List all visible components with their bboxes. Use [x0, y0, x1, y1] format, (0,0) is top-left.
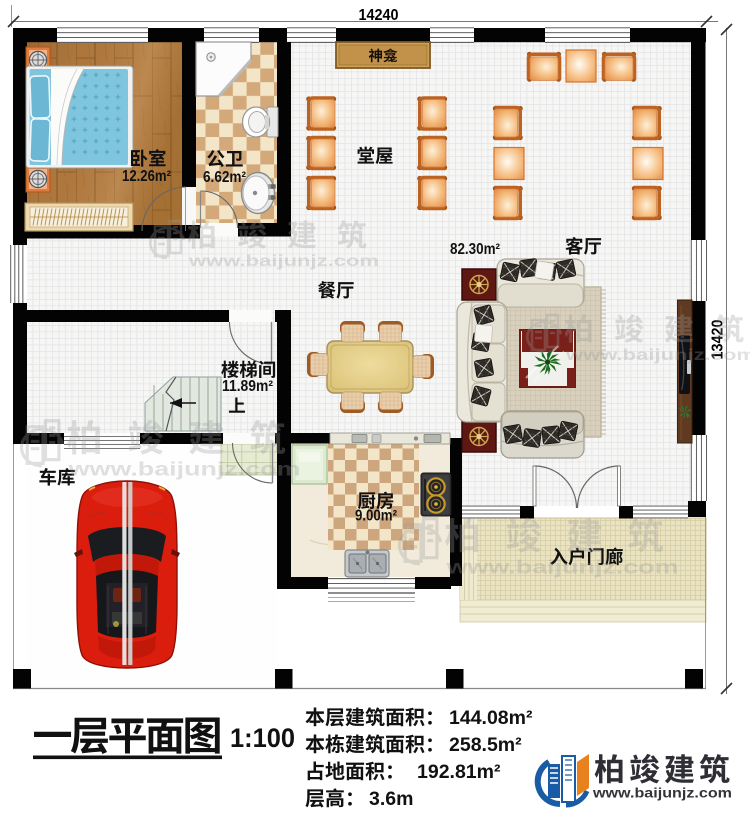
svg-text:www.baijunjz.com: www.baijunjz.com [67, 459, 300, 481]
svg-text:6.62m²: 6.62m² [203, 169, 246, 186]
svg-text:9.00m²: 9.00m² [355, 508, 397, 525]
svg-text:3.6m: 3.6m [369, 788, 413, 810]
svg-text:11.89m²: 11.89m² [222, 378, 273, 395]
svg-text:www.baijunjz.com: www.baijunjz.com [592, 786, 732, 801]
svg-text:www.baijunjz.com: www.baijunjz.com [565, 347, 750, 364]
svg-text:14240: 14240 [359, 7, 399, 24]
svg-text:192.81m²: 192.81m² [417, 761, 501, 783]
svg-text:1:100: 1:100 [230, 723, 295, 753]
svg-text:www.baijunjz.com: www.baijunjz.com [188, 253, 379, 270]
svg-text:144.08m²: 144.08m² [449, 707, 533, 729]
svg-text:258.5m²: 258.5m² [449, 734, 522, 756]
svg-text:82.30m²: 82.30m² [450, 241, 500, 258]
svg-text:www.baijunjz.com: www.baijunjz.com [445, 557, 678, 579]
svg-text:12.26m²: 12.26m² [122, 168, 171, 185]
